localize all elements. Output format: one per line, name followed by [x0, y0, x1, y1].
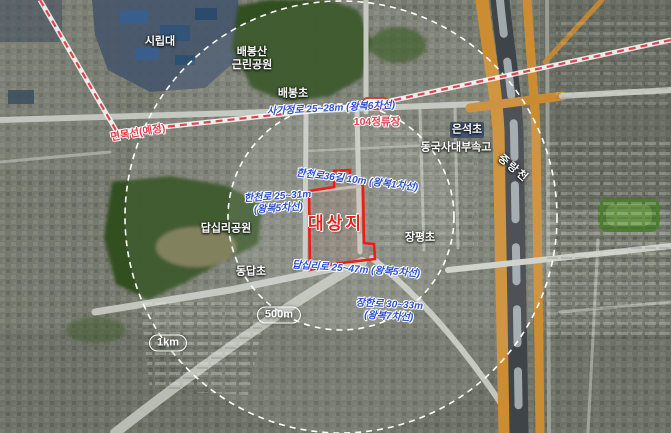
rail-station-icon — [362, 98, 389, 109]
satellite-map — [0, 0, 671, 433]
location-map: 시립대 배봉산 근린공원 배봉초 은석초 동국사대부속고 중랑천 답십리공원 장… — [0, 0, 671, 433]
